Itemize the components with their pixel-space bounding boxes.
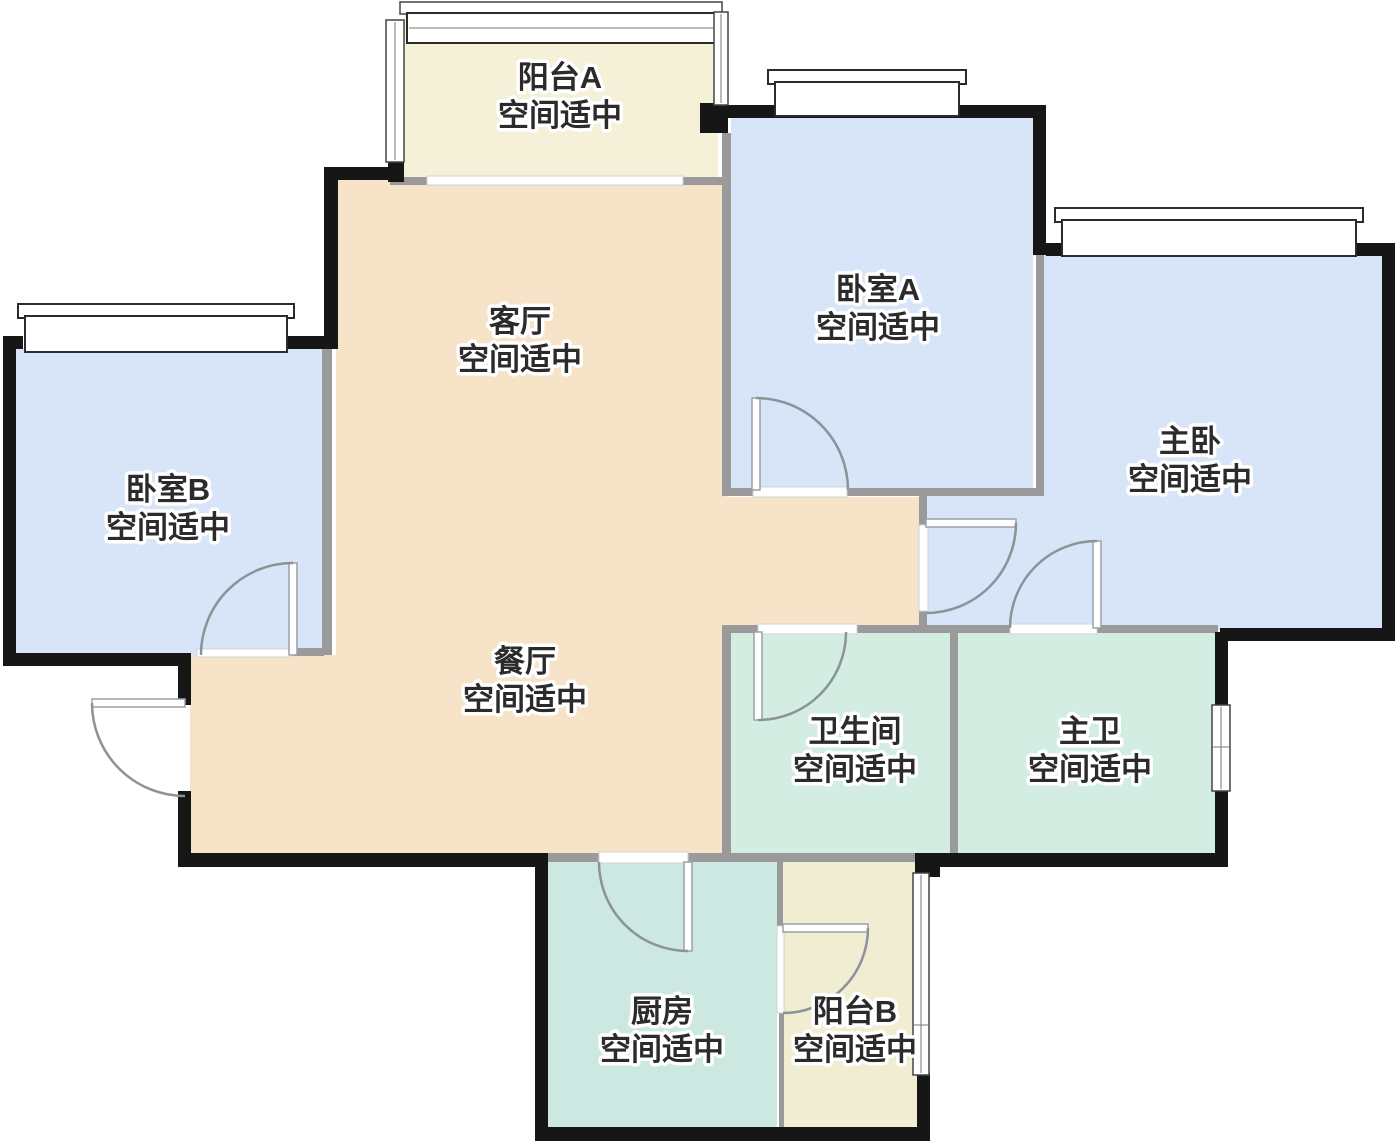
wall-master-bath-south [917,853,1228,867]
label-balcony-b-status: 空间适中 [793,1032,917,1067]
wall-bathroom-top-mid [857,625,1010,633]
label-bedroom-a-name: 卧室A [836,272,920,307]
wall-bedroom-a-south-left [722,488,753,496]
wall-kitchen-balcony-b-upper [777,862,783,926]
opening-master-nook [919,525,928,611]
label-balcony-b-name: 阳台B [813,994,897,1029]
opening-kitchen [599,852,688,863]
window-master-bath [1212,705,1230,791]
opening-balcony-a [427,176,683,185]
label-master-bedroom-name: 主卧 [1159,424,1221,459]
window-balcony-a-top [400,2,722,43]
wall-dining-bathroom [722,632,731,857]
wall-bedroom-b-south [3,653,189,666]
wall-balcony-a-ne-block [700,103,728,133]
label-bedroom-b-name: 卧室B [126,472,210,507]
wall-kitchen-top-left [543,853,599,862]
room-master-bedroom-nook-floor [927,490,1044,628]
label-bathroom-name: 卫生间 [809,714,902,749]
wall-entry-upper [178,653,191,705]
wall-master-bedroom-east [1382,243,1395,641]
floorplan-canvas: 阳台A 空间适中 卧室A 空间适中 主卧 空间适中 卧室B 空间适中 客厅 空间… [0,0,1400,1144]
wall-master-bath-east-upper [1215,632,1228,707]
label-living-name: 客厅 [489,304,551,339]
wall-master-bedroom-south [1220,628,1395,641]
label-master-bath-name: 主卫 [1059,714,1121,749]
label-kitchen-status: 空间适中 [600,1032,724,1067]
label-master-bedroom-status: 空间适中 [1128,462,1252,497]
wall-bath-divider [950,632,958,855]
wall-balcony-a-bottom-right [683,177,724,185]
wall-kitchen-west [535,853,548,1141]
label-master-bath-status: 空间适中 [1028,752,1152,787]
wall-kitchen-top-right [688,853,917,862]
opening-bedroom-b [197,649,293,657]
wall-bedroom-b-east [322,349,332,655]
wall-bedroom-a-master [1036,255,1044,493]
label-dining-name: 餐厅 [494,644,556,679]
window-master-bedroom [1055,208,1363,256]
wall-bedroom-a-east [1033,105,1046,255]
label-bedroom-b-status: 空间适中 [106,510,230,545]
wall-bathroom-top-left [722,625,758,633]
opening-bedroom-a [753,487,847,497]
window-bedroom-a [768,70,966,116]
window-bedroom-b [18,304,294,352]
label-balcony-a-status: 空间适中 [498,98,622,133]
label-kitchen-name: 厨房 [631,994,693,1029]
room-dining-entry-floor [190,655,336,860]
room-dining-east-floor [727,497,923,628]
wall-bedroom-b-north-right [287,336,330,349]
wall-balcony-b-se [917,1073,930,1141]
floorplan: 阳台A 空间适中 卧室A 空间适中 主卧 空间适中 卧室B 空间适中 客厅 空间… [0,0,1400,1144]
label-living-status: 空间适中 [458,342,582,377]
wall-bedroom-a-south-right [847,488,1044,496]
label-dining-status: 空间适中 [463,682,587,717]
wall-master-bath-east-lower [1215,789,1228,867]
wall-living-bedroom-a [722,133,731,490]
wall-balcony-a-sw-stub [388,160,404,182]
label-bathroom-status: 空间适中 [793,752,917,787]
wall-master-bath-top [1097,625,1218,633]
wall-kitchen-balcony-b-lower [779,1013,784,1129]
label-bedroom-a-status: 空间适中 [816,310,940,345]
opening-master-bath [1010,624,1097,634]
wall-living-west [324,167,338,349]
opening-balcony-b [777,926,784,1013]
door-entry [92,699,185,796]
wall-bedroom-b-west [3,336,16,666]
opening-bathroom [758,624,857,634]
window-balcony-a-left [386,20,404,162]
window-balcony-a-right [714,12,728,105]
wall-bottom [535,1127,927,1141]
wall-dining-south [178,853,545,867]
label-balcony-a-name: 阳台A [518,60,602,95]
